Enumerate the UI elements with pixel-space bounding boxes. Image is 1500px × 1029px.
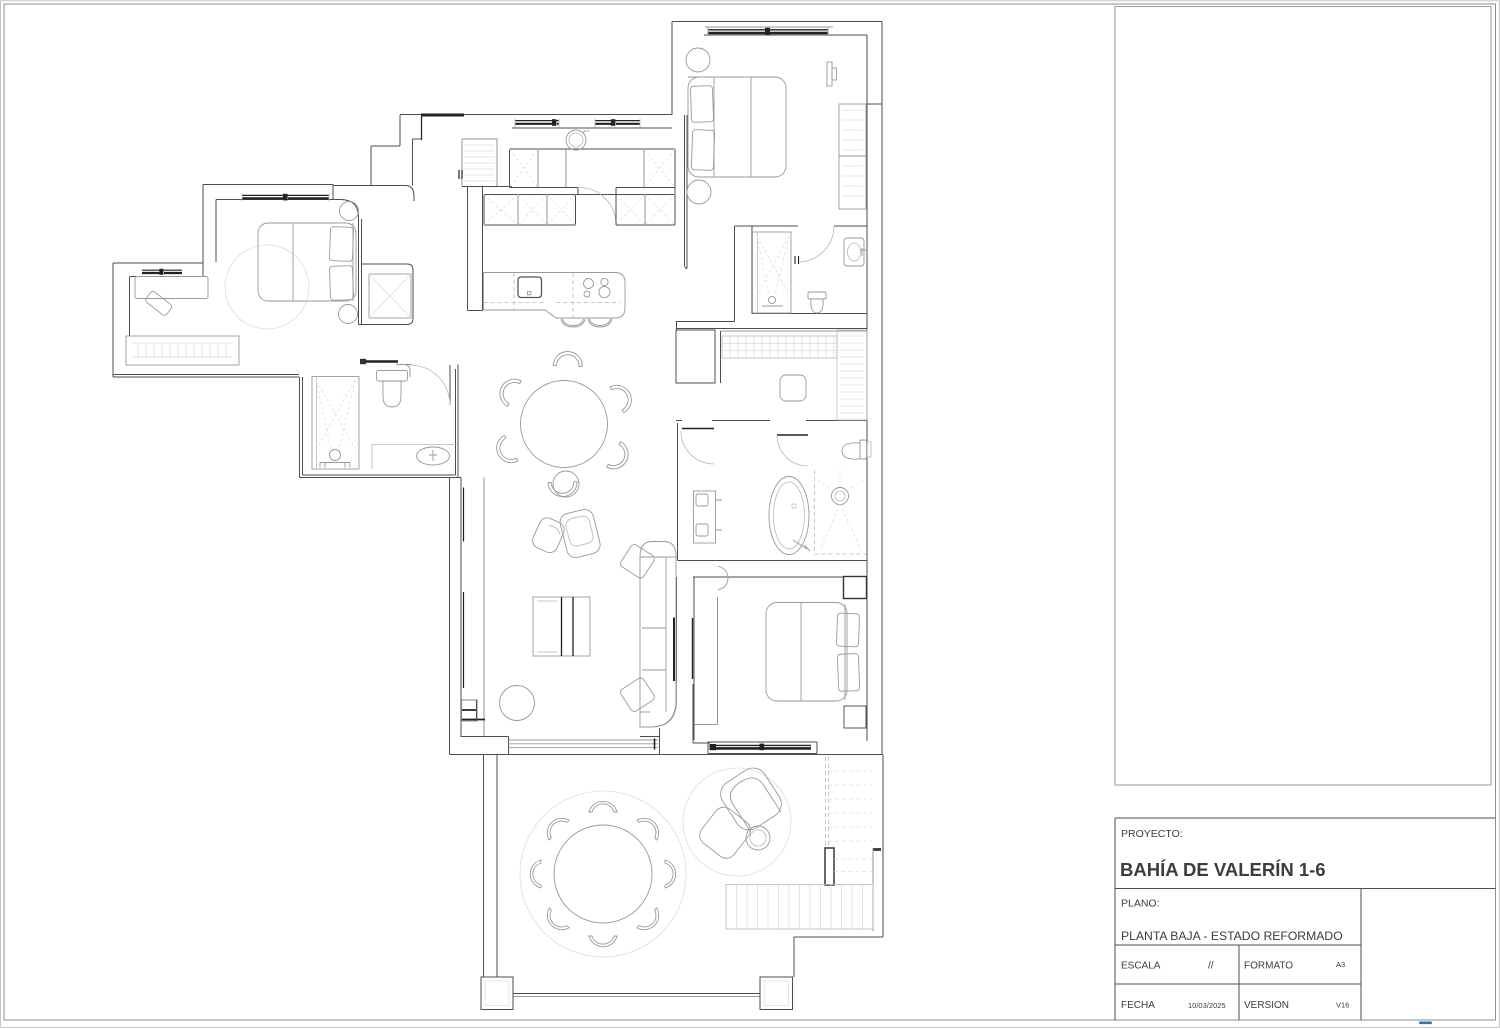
svg-text:A3: A3 (1336, 960, 1345, 969)
svg-text:V16: V16 (1336, 1001, 1349, 1010)
svg-text:10/03/2025: 10/03/2025 (1188, 1001, 1226, 1010)
svg-text:BAHÍA DE VALERÍN 1-6: BAHÍA DE VALERÍN 1-6 (1120, 859, 1326, 880)
svg-text:ESCALA: ESCALA (1121, 961, 1161, 972)
svg-text:PROYECTO:: PROYECTO: (1121, 828, 1183, 840)
svg-text://: // (1208, 961, 1214, 972)
svg-text:FECHA: FECHA (1121, 1000, 1155, 1011)
svg-text:PLANTA BAJA - ESTADO REFORMADO: PLANTA BAJA - ESTADO REFORMADO (1121, 929, 1343, 943)
svg-text:VERSION: VERSION (1244, 1000, 1289, 1011)
svg-text:PLANO:: PLANO: (1121, 898, 1160, 910)
svg-text:FORMATO: FORMATO (1244, 961, 1293, 972)
